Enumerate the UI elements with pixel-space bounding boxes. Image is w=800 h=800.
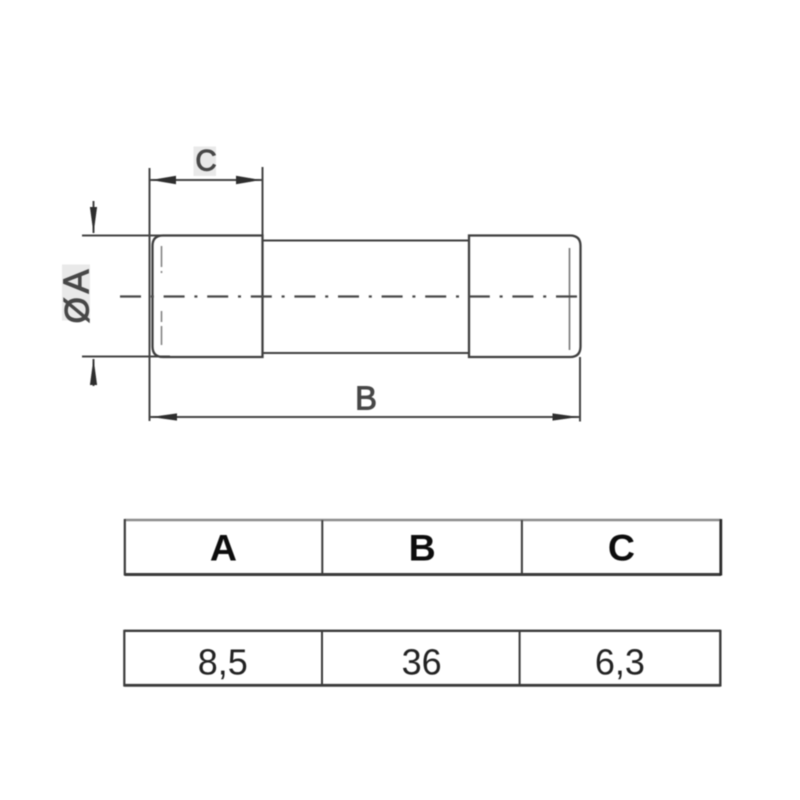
svg-text:36: 36: [402, 642, 442, 683]
svg-text:A: A: [210, 527, 237, 569]
svg-text:B: B: [409, 527, 436, 569]
svg-text:C: C: [195, 145, 216, 178]
svg-text:B: B: [355, 380, 377, 417]
svg-text:Ø: Ø: [59, 297, 97, 323]
svg-text:6,3: 6,3: [595, 642, 645, 683]
svg-text:C: C: [608, 527, 635, 569]
svg-text:8,5: 8,5: [198, 642, 248, 683]
svg-text:A: A: [56, 269, 97, 293]
